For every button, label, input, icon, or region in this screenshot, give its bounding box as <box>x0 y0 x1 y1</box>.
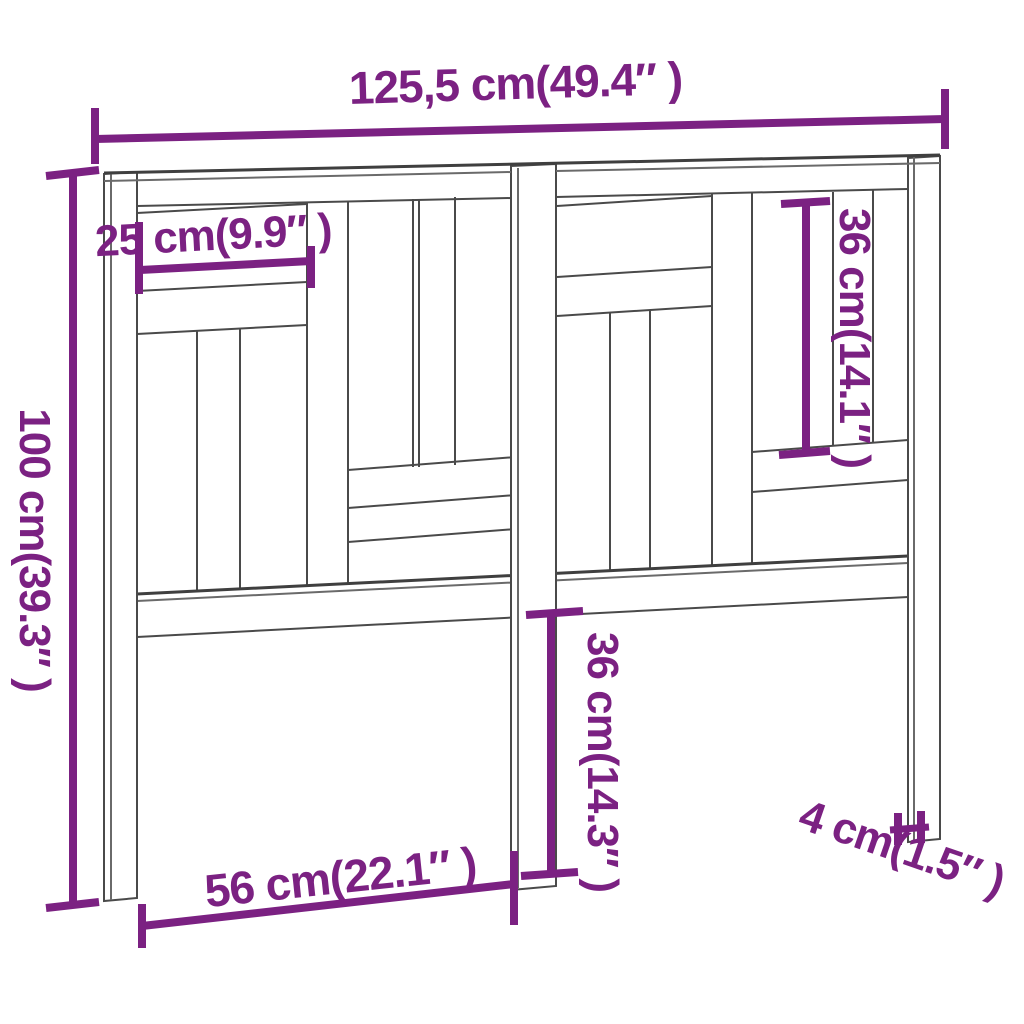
panel-b <box>348 197 516 542</box>
label-upper-panel: 36 cm(14.1″ ) <box>830 208 879 468</box>
label-leg-height: 36 cm(14.3″ ) <box>578 632 627 892</box>
right-post <box>908 156 940 842</box>
dimension-upper-panel <box>779 201 830 455</box>
label-total-width: 125,5 cm(49.4″ ) <box>348 52 683 114</box>
label-total-height: 100 cm(39.3″ ) <box>10 408 59 691</box>
headboard-drawing: 125,5 cm(49.4″ ) 100 cm(39.3″ ) 25 cm(9.… <box>0 0 1024 1024</box>
panel-d <box>752 190 908 492</box>
left-post <box>104 172 137 901</box>
tall-slat-right <box>712 193 752 567</box>
label-leg-thickness: 4 cm(1.5″ ) <box>793 790 1010 906</box>
dimension-diagram: 125,5 cm(49.4″ ) 100 cm(39.3″ ) 25 cm(9.… <box>0 0 1024 1024</box>
panel-c <box>557 196 712 572</box>
